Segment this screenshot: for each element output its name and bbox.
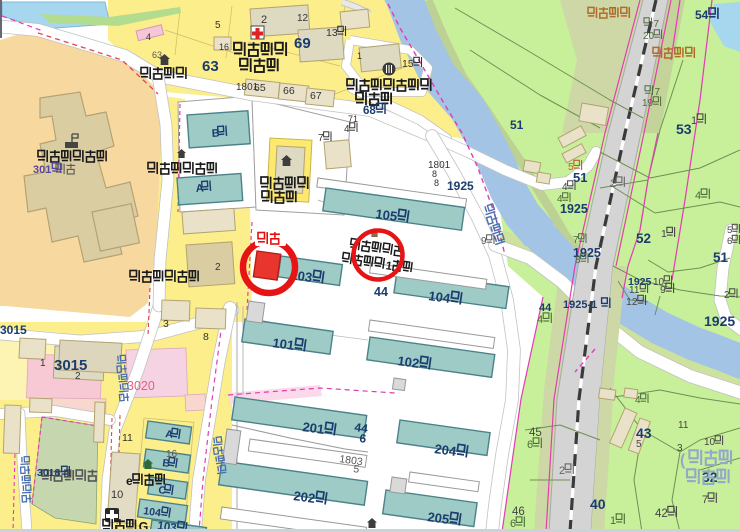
svg-text:16: 16 xyxy=(166,449,178,460)
svg-text:6: 6 xyxy=(727,236,732,247)
svg-text:1801: 1801 xyxy=(236,82,259,93)
svg-text:54: 54 xyxy=(695,8,709,22)
svg-text:104: 104 xyxy=(143,505,162,519)
svg-text:45: 45 xyxy=(529,427,542,439)
svg-text:5: 5 xyxy=(568,161,574,173)
svg-text:16: 16 xyxy=(219,42,229,52)
svg-text:11: 11 xyxy=(122,432,133,444)
svg-text:e: e xyxy=(126,474,133,488)
svg-text:2: 2 xyxy=(75,371,81,382)
svg-text:204: 204 xyxy=(434,441,458,459)
svg-text:46: 46 xyxy=(512,506,525,518)
svg-text:13: 13 xyxy=(326,27,338,39)
svg-text:1925: 1925 xyxy=(560,202,588,216)
svg-text:40: 40 xyxy=(590,496,606,512)
svg-text:B: B xyxy=(211,127,220,140)
svg-text:3015: 3015 xyxy=(0,323,27,337)
svg-text:A: A xyxy=(195,182,204,195)
svg-text:5: 5 xyxy=(636,439,642,450)
svg-text:66: 66 xyxy=(283,85,295,97)
svg-text:12: 12 xyxy=(297,13,309,24)
svg-text:1925-1: 1925-1 xyxy=(563,299,597,311)
svg-text:2: 2 xyxy=(261,14,267,26)
svg-text:1: 1 xyxy=(610,515,616,527)
svg-text:8: 8 xyxy=(434,178,439,188)
svg-text:3020: 3020 xyxy=(127,379,155,393)
svg-text:1: 1 xyxy=(357,51,362,61)
svg-text:53: 53 xyxy=(676,121,692,137)
svg-text:4: 4 xyxy=(146,32,151,42)
svg-text:1: 1 xyxy=(691,115,697,127)
svg-text:1: 1 xyxy=(661,228,667,240)
svg-text:68: 68 xyxy=(363,105,376,117)
svg-text:10: 10 xyxy=(704,437,716,448)
svg-text:9: 9 xyxy=(481,236,487,247)
svg-text:63: 63 xyxy=(152,50,162,60)
svg-text:69: 69 xyxy=(294,35,311,52)
svg-text:1925: 1925 xyxy=(447,179,474,193)
svg-text:5: 5 xyxy=(727,225,732,236)
svg-text:6: 6 xyxy=(527,439,533,451)
svg-text:(: ( xyxy=(680,452,686,469)
svg-text:2: 2 xyxy=(215,262,221,273)
svg-text:4: 4 xyxy=(344,124,350,135)
svg-text:8: 8 xyxy=(203,331,209,343)
svg-text:9: 9 xyxy=(660,284,666,296)
svg-text:44: 44 xyxy=(374,285,388,299)
svg-text:11: 11 xyxy=(629,285,640,296)
svg-text:12: 12 xyxy=(626,296,638,308)
svg-text:3018: 3018 xyxy=(37,467,61,479)
svg-text:102: 102 xyxy=(397,353,421,371)
svg-text:5: 5 xyxy=(215,20,221,31)
svg-text:7: 7 xyxy=(318,133,324,144)
svg-text:15: 15 xyxy=(402,58,414,70)
svg-text:202: 202 xyxy=(293,488,317,506)
svg-text:3: 3 xyxy=(163,318,169,330)
svg-text:7: 7 xyxy=(654,19,660,30)
svg-text:20: 20 xyxy=(643,31,655,42)
svg-text:67: 67 xyxy=(310,90,322,102)
svg-text:51: 51 xyxy=(510,118,524,132)
svg-text:1: 1 xyxy=(40,358,46,369)
svg-text:51: 51 xyxy=(713,250,729,265)
svg-text:2: 2 xyxy=(610,178,616,190)
svg-text:4: 4 xyxy=(695,190,701,202)
svg-text:7: 7 xyxy=(702,494,708,506)
svg-text:301: 301 xyxy=(33,164,51,176)
svg-text:4: 4 xyxy=(537,314,543,326)
svg-text:10: 10 xyxy=(111,489,123,501)
svg-text:19: 19 xyxy=(642,98,654,109)
svg-text:1925: 1925 xyxy=(704,313,735,329)
svg-text:44: 44 xyxy=(539,302,552,314)
svg-text:6: 6 xyxy=(510,518,516,530)
svg-text:104: 104 xyxy=(428,288,452,306)
svg-text:2: 2 xyxy=(559,465,565,477)
svg-text:42: 42 xyxy=(655,508,668,520)
svg-text:105: 105 xyxy=(375,206,399,224)
svg-text:101: 101 xyxy=(272,335,296,353)
svg-text:11: 11 xyxy=(678,420,689,431)
svg-text:63: 63 xyxy=(202,58,219,75)
svg-text:205: 205 xyxy=(427,509,451,527)
svg-text:3015: 3015 xyxy=(54,357,87,374)
svg-text:201: 201 xyxy=(302,419,326,437)
svg-text:52: 52 xyxy=(636,231,651,246)
